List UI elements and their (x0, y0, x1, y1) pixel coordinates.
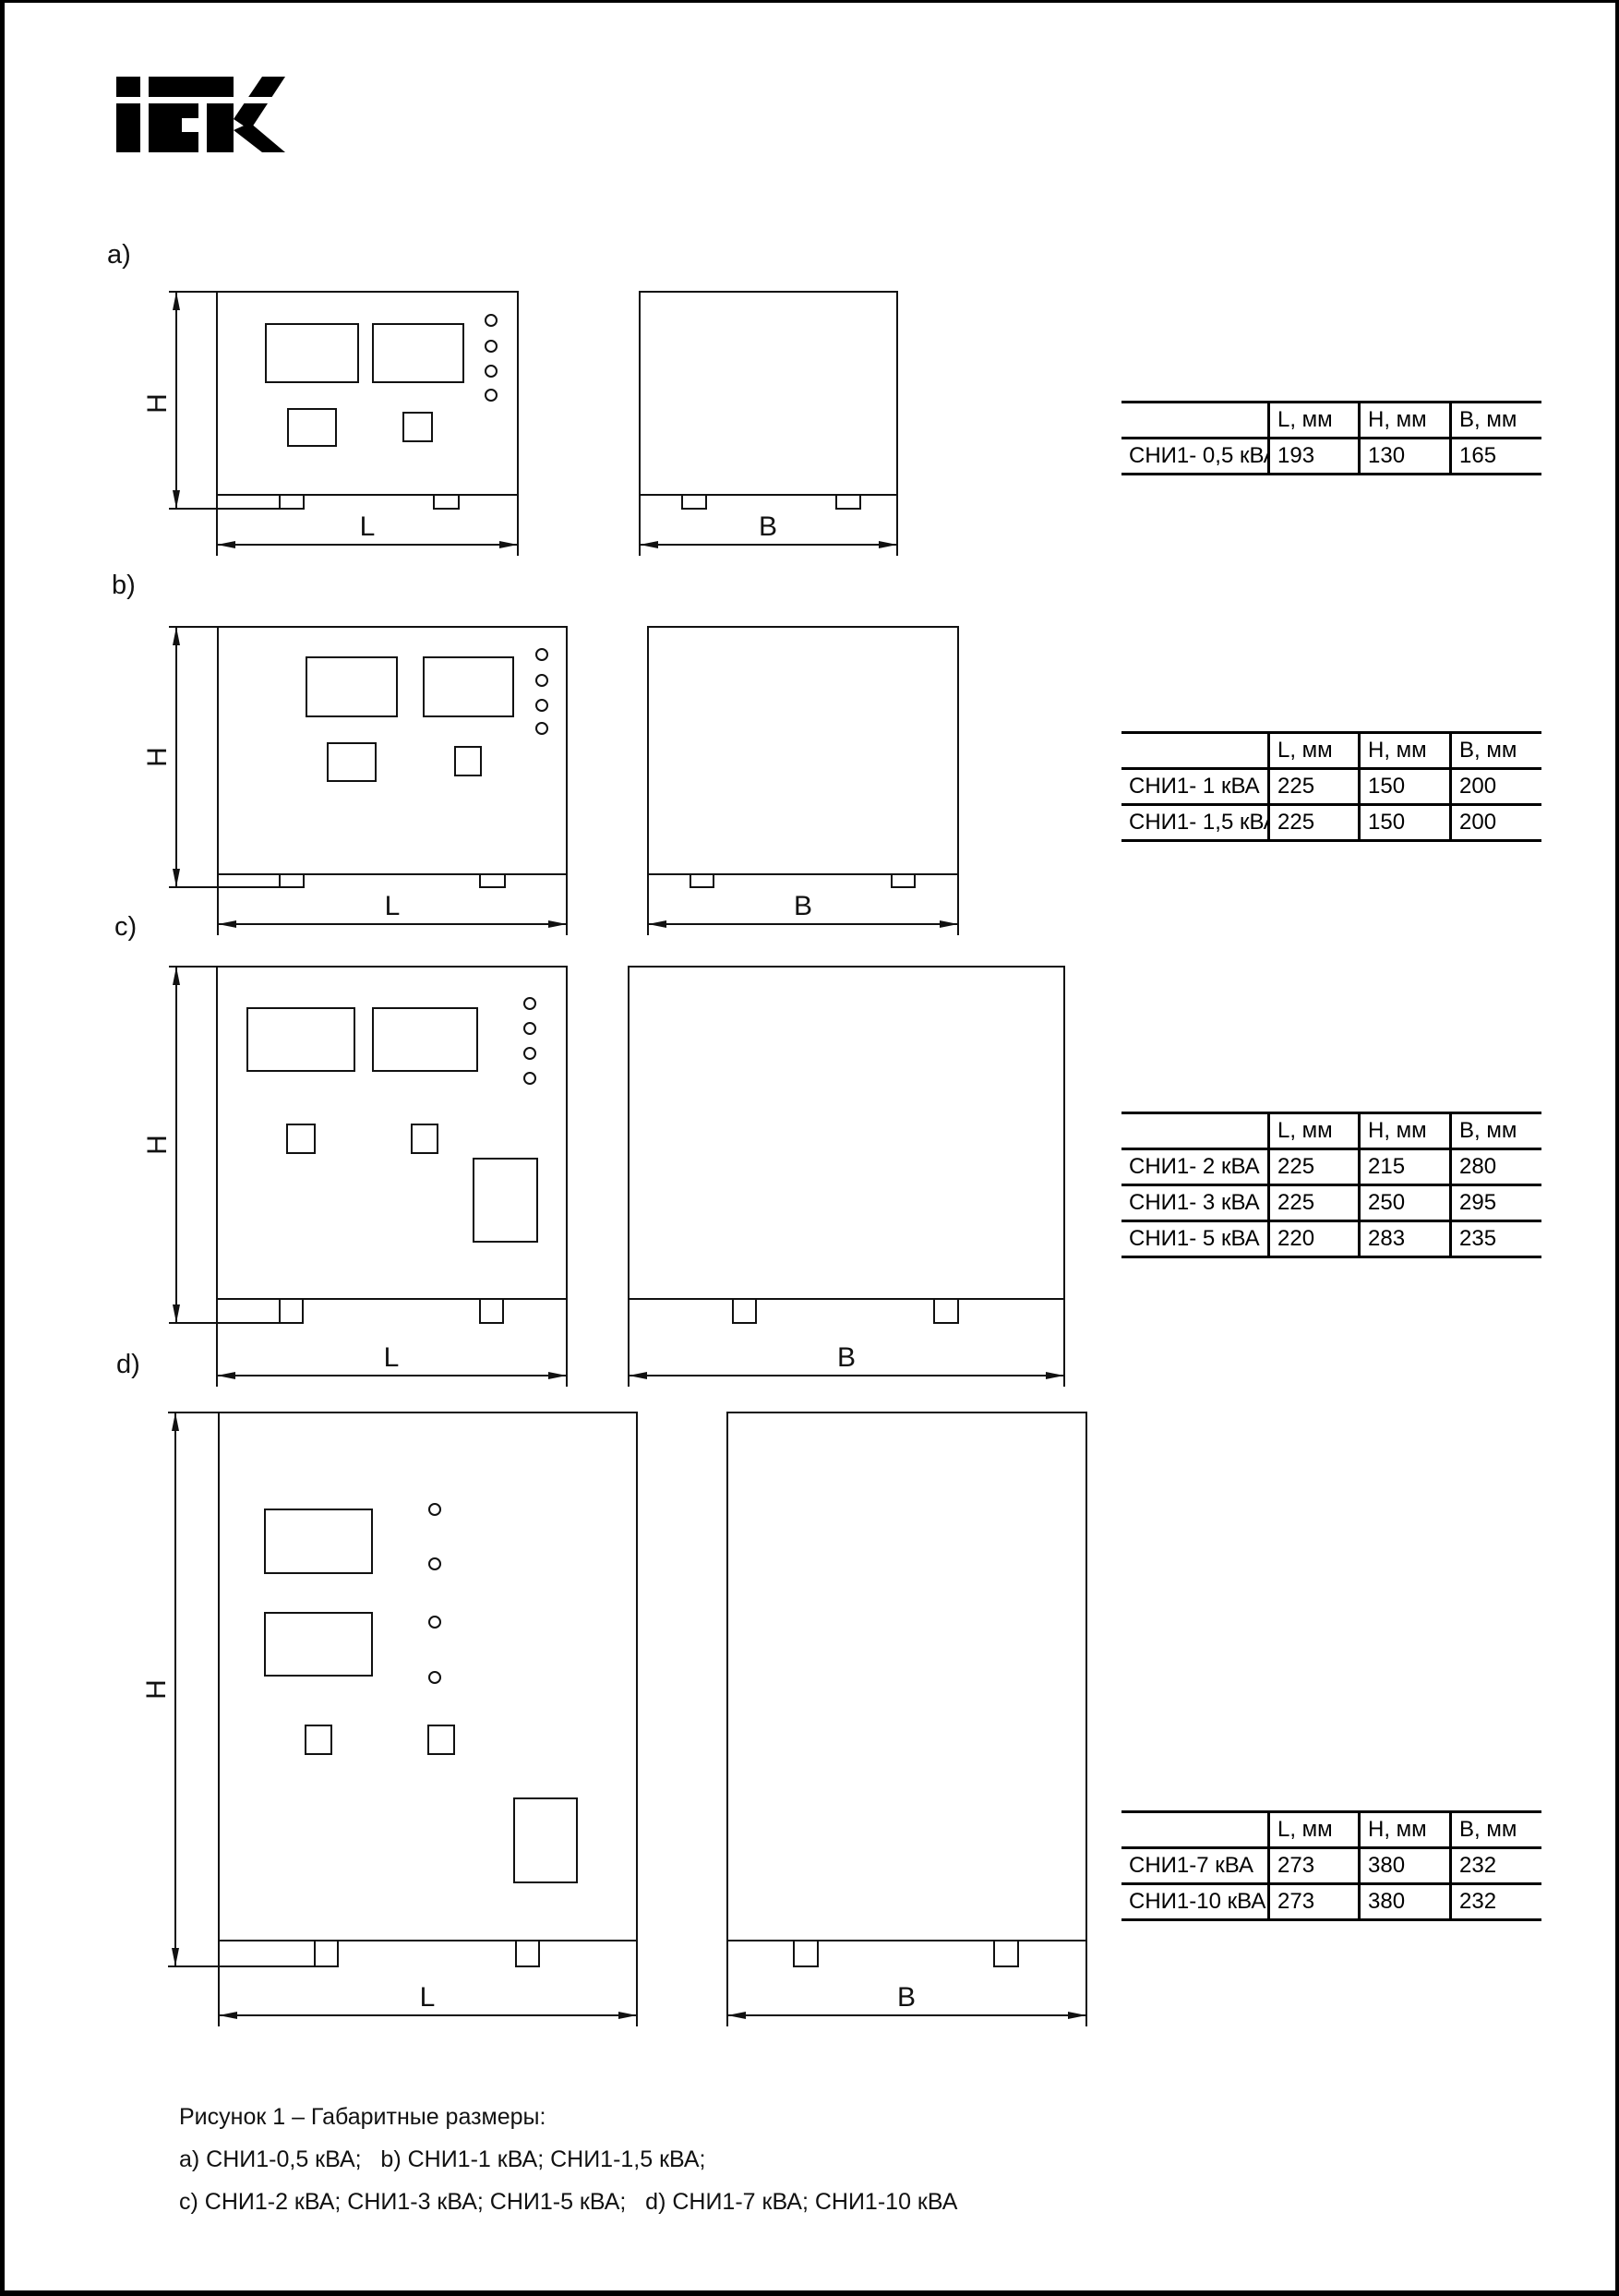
display-window-c1 (247, 1008, 354, 1071)
front-body-c (217, 967, 567, 1299)
side-body-b (648, 627, 958, 874)
display-window-c2 (373, 1008, 477, 1071)
header-cell-l: L, мм (1269, 403, 1360, 439)
side-body-d (727, 1412, 1086, 1941)
side-foot-a2 (836, 495, 860, 509)
foot-a1 (280, 495, 304, 509)
value-cell-l: 225 (1269, 1149, 1360, 1185)
l-label-a: L (360, 511, 376, 542)
table-row: СНИ1- 3 кВА 225 250 295 (1121, 1185, 1541, 1221)
front-view-c (217, 967, 567, 1323)
display-window-a1 (266, 324, 358, 382)
value-cell-h: 283 (1360, 1221, 1451, 1257)
value-cell-h: 250 (1360, 1185, 1451, 1221)
dimensions-table-b: L, мм H, мм B, мм СНИ1- 1 кВА 225 150 20… (1121, 731, 1541, 842)
indicator-circles-d (429, 1504, 440, 1683)
header-cell-h: H, мм (1360, 1812, 1451, 1848)
value-cell-l: 225 (1269, 769, 1360, 805)
header-cell-h: H, мм (1360, 1113, 1451, 1149)
socket-panel-d (514, 1798, 577, 1882)
dimension-l-b: L (218, 874, 567, 935)
value-cell-l: 193 (1269, 439, 1360, 475)
display-window-d2 (265, 1613, 372, 1676)
side-foot-a1 (682, 495, 706, 509)
indicator-circles-c (524, 998, 535, 1084)
table-row: СНИ1-10 кВА 273 380 232 (1121, 1884, 1541, 1920)
side-body-a (640, 292, 897, 495)
indicator-circles-b (536, 649, 547, 734)
l-label-d: L (420, 1982, 436, 2013)
header-cell-b: B, мм (1451, 403, 1542, 439)
front-view-d (219, 1412, 637, 1966)
model-cell: СНИ1- 0,5 кВА (1121, 439, 1269, 475)
value-cell-h: 380 (1360, 1848, 1451, 1884)
value-cell-b: 232 (1451, 1848, 1542, 1884)
front-body-b (218, 627, 567, 874)
display-window-b2 (424, 657, 513, 716)
value-cell-h: 150 (1360, 805, 1451, 841)
dimensions-table-c: L, мм H, мм B, мм СНИ1- 2 кВА 225 215 28… (1121, 1112, 1541, 1258)
figure-b: H L B (142, 627, 958, 935)
foot-a2 (434, 495, 459, 509)
value-cell-h: 130 (1360, 439, 1451, 475)
figure-d: H L B (141, 1412, 1086, 2026)
header-cell-blank (1121, 1113, 1269, 1149)
switch-panel-b2 (455, 747, 481, 775)
display-window-b1 (306, 657, 397, 716)
side-view-c (629, 967, 1064, 1323)
table-row: СНИ1- 1,5 кВА 225 150 200 (1121, 805, 1541, 841)
value-cell-l: 225 (1269, 1185, 1360, 1221)
model-cell: СНИ1- 1,5 кВА (1121, 805, 1269, 841)
header-cell-l: L, мм (1269, 1113, 1360, 1149)
model-cell: СНИ1- 1 кВА (1121, 769, 1269, 805)
side-body-c (629, 967, 1064, 1299)
header-cell-blank (1121, 403, 1269, 439)
section-label-d: d) (116, 1350, 140, 1380)
foot-b1 (280, 874, 304, 887)
value-cell-b: 200 (1451, 805, 1542, 841)
header-cell-b: B, мм (1451, 1113, 1542, 1149)
dimension-h-d: H (141, 1412, 315, 1966)
table-row: СНИ1- 1 кВА 225 150 200 (1121, 769, 1541, 805)
dimension-b-a: B (640, 495, 897, 556)
section-label-c: c) (114, 912, 137, 943)
switch-panel-b1 (328, 743, 376, 781)
h-label-b: H (142, 747, 173, 767)
h-label-c: H (142, 1135, 173, 1155)
value-cell-b: 232 (1451, 1884, 1542, 1920)
header-cell-blank (1121, 1812, 1269, 1848)
value-cell-l: 273 (1269, 1848, 1360, 1884)
caption-line-3: c) СНИ1-2 кВА; СНИ1-3 кВА; СНИ1-5 кВА; d… (179, 2181, 957, 2223)
foot-d1 (315, 1941, 338, 1966)
side-foot-d2 (994, 1941, 1018, 1966)
switch-panel-d2 (428, 1725, 454, 1754)
h-label-a: H (142, 393, 173, 414)
table-row: СНИ1-7 кВА 273 380 232 (1121, 1848, 1541, 1884)
section-label-a: a) (107, 240, 131, 270)
side-view-b (648, 627, 958, 887)
table-header-row: L, мм H, мм B, мм (1121, 733, 1541, 769)
side-foot-d1 (794, 1941, 818, 1966)
dimension-b-c: B (629, 1299, 1064, 1387)
side-foot-b2 (892, 874, 915, 887)
front-view-a (217, 292, 518, 509)
switch-panel-a2 (403, 413, 432, 441)
dimensions-table-d: L, мм H, мм B, мм СНИ1-7 кВА 273 380 232… (1121, 1810, 1541, 1921)
side-view-d (727, 1412, 1086, 1966)
figure-a: H L B (142, 292, 897, 556)
section-label-b: b) (112, 571, 136, 601)
value-cell-l: 225 (1269, 805, 1360, 841)
model-cell: СНИ1-7 кВА (1121, 1848, 1269, 1884)
iek-logo (114, 77, 290, 152)
value-cell-b: 295 (1451, 1185, 1542, 1221)
model-cell: СНИ1-10 кВА (1121, 1884, 1269, 1920)
model-cell: СНИ1- 5 кВА (1121, 1221, 1269, 1257)
header-cell-l: L, мм (1269, 1812, 1360, 1848)
display-window-d1 (265, 1509, 372, 1573)
h-label-d: H (141, 1679, 172, 1700)
value-cell-b: 200 (1451, 769, 1542, 805)
document-page: IEK (0, 0, 1619, 2296)
header-cell-b: B, мм (1451, 1812, 1542, 1848)
switch-panel-c2 (412, 1124, 438, 1153)
value-cell-b: 280 (1451, 1149, 1542, 1185)
figure-caption: Рисунок 1 – Габаритные размеры: a) СНИ1-… (179, 2096, 957, 2223)
side-foot-c1 (733, 1299, 756, 1323)
indicator-circles-a (486, 315, 497, 401)
value-cell-l: 273 (1269, 1884, 1360, 1920)
header-cell-blank (1121, 733, 1269, 769)
b-label-a: B (759, 511, 777, 542)
header-cell-l: L, мм (1269, 733, 1360, 769)
dimension-l-d: L (219, 1941, 637, 2026)
side-view-a (640, 292, 897, 509)
value-cell-l: 220 (1269, 1221, 1360, 1257)
side-foot-b1 (690, 874, 714, 887)
table-row: СНИ1- 0,5 кВА 193 130 165 (1121, 439, 1541, 475)
header-cell-b: B, мм (1451, 733, 1542, 769)
front-view-b (218, 627, 567, 887)
table-row: СНИ1- 5 кВА 220 283 235 (1121, 1221, 1541, 1257)
table-header-row: L, мм H, мм B, мм (1121, 403, 1541, 439)
switch-panel-d1 (306, 1725, 331, 1754)
foot-c2 (480, 1299, 503, 1323)
l-label-c: L (384, 1342, 400, 1373)
dimension-h-a: H (142, 292, 280, 509)
model-cell: СНИ1- 3 кВА (1121, 1185, 1269, 1221)
header-cell-h: H, мм (1360, 403, 1451, 439)
dimensions-table-a: L, мм H, мм B, мм СНИ1- 0,5 кВА 193 130 … (1121, 401, 1541, 475)
dimension-l-a: L (217, 495, 518, 556)
b-label-b: B (794, 891, 812, 921)
caption-line-2: a) СНИ1-0,5 кВА; b) СНИ1-1 кВА; СНИ1-1,5… (179, 2138, 957, 2181)
value-cell-h: 215 (1360, 1149, 1451, 1185)
dimension-h-c: H (142, 967, 280, 1323)
front-body-a (217, 292, 518, 495)
model-cell: СНИ1- 2 кВА (1121, 1149, 1269, 1185)
foot-b2 (480, 874, 505, 887)
table-row: СНИ1- 2 кВА 225 215 280 (1121, 1149, 1541, 1185)
side-foot-c2 (934, 1299, 958, 1323)
caption-line-1: Рисунок 1 – Габаритные размеры: (179, 2096, 957, 2138)
l-label-b: L (385, 891, 401, 921)
figure-c: H L B (142, 967, 1064, 1387)
table-header-row: L, мм H, мм B, мм (1121, 1812, 1541, 1848)
header-cell-h: H, мм (1360, 733, 1451, 769)
b-label-c: B (837, 1342, 856, 1373)
value-cell-h: 380 (1360, 1884, 1451, 1920)
b-label-d: B (897, 1982, 916, 2013)
value-cell-b: 165 (1451, 439, 1542, 475)
display-window-a2 (373, 324, 463, 382)
dimension-b-d: B (727, 1941, 1086, 2026)
dimension-h-b: H (142, 627, 280, 887)
switch-panel-a1 (288, 409, 336, 446)
value-cell-b: 235 (1451, 1221, 1542, 1257)
switch-panel-c1 (287, 1124, 315, 1153)
socket-panel-c (474, 1159, 537, 1242)
dimension-l-c: L (217, 1299, 567, 1387)
value-cell-h: 150 (1360, 769, 1451, 805)
dimension-b-b: B (648, 874, 958, 935)
table-header-row: L, мм H, мм B, мм (1121, 1113, 1541, 1149)
foot-c1 (280, 1299, 303, 1323)
foot-d2 (516, 1941, 539, 1966)
